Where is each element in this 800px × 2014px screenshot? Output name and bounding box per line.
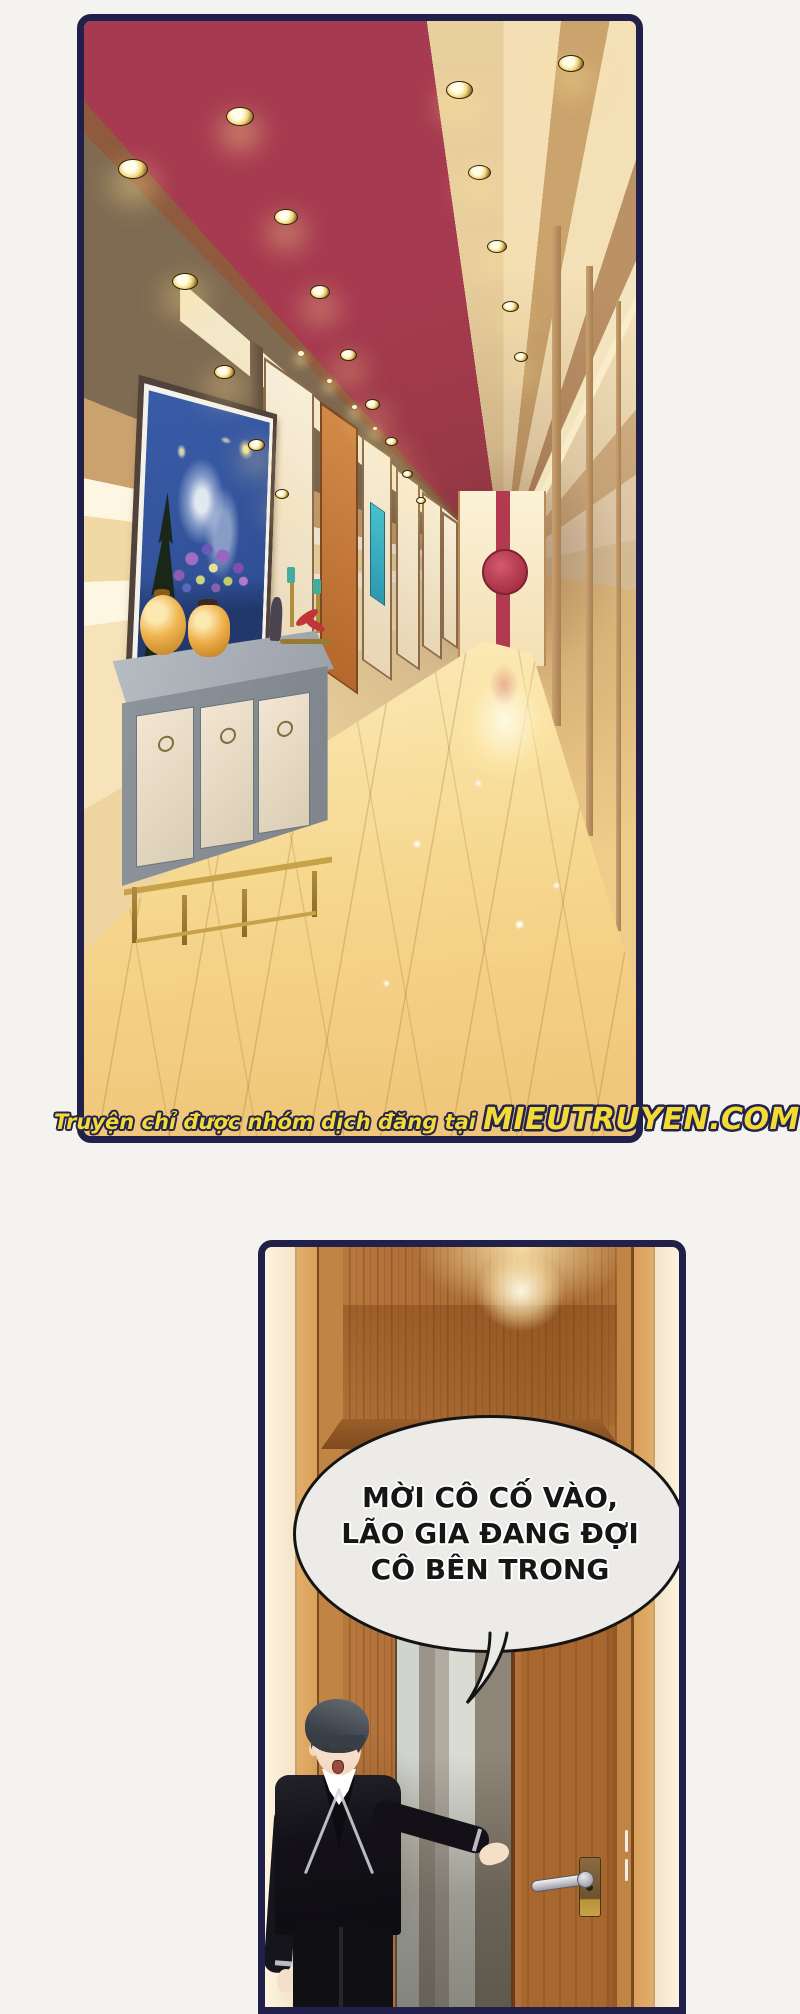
speech-bubble-tail — [461, 1631, 517, 1709]
sideboard-leg — [242, 889, 247, 937]
ceiling-light — [118, 159, 148, 179]
watermark: Truyện chỉ được nhóm dịch đăng tại MIEUT… — [54, 1102, 800, 1137]
ceiling-light — [365, 399, 380, 410]
flower-bouquet — [166, 539, 252, 605]
ring-handle — [277, 720, 293, 739]
ceiling-light — [402, 470, 413, 478]
candlestick — [290, 581, 294, 627]
speech-line: LÃO GIA ĐANG ĐỢI — [341, 1516, 639, 1552]
wall-pillar — [586, 266, 593, 836]
ceiling-light — [248, 439, 265, 451]
teal-candle — [287, 567, 295, 583]
ceiling-light — [416, 497, 426, 504]
ceiling-light — [487, 240, 507, 253]
end-wall-red-medallion — [482, 549, 528, 595]
ceiling-light — [214, 365, 235, 379]
hallway-panel — [77, 14, 643, 1143]
corridor-door-orange — [320, 401, 358, 695]
speech-line: MỜI CÔ CỐ VÀO, — [341, 1480, 639, 1516]
ceiling-light — [468, 165, 491, 180]
door-art-teal — [370, 502, 385, 607]
doorway-light-glow — [465, 1240, 577, 1343]
right-wall-strip — [653, 1247, 681, 2007]
corridor-door — [422, 491, 442, 660]
speech-bubble-text: MỜI CÔ CỐ VÀO, LÃO GIA ĐANG ĐỢI CÔ BÊN T… — [341, 1480, 639, 1588]
corridor-door — [442, 511, 458, 649]
frame-highlight — [625, 1830, 628, 1852]
floor-red-reflection — [484, 657, 524, 713]
wall-pillar — [616, 301, 621, 931]
floor-sparkle — [476, 781, 481, 786]
floor-sparkle — [414, 841, 420, 847]
amber-flower-vase — [188, 605, 230, 657]
watermark-site: MIEUTRUYEN.COM — [483, 1102, 800, 1137]
frame-highlight — [625, 1859, 628, 1881]
deco-tray — [280, 639, 332, 644]
speech-line: CÔ BÊN TRONG — [341, 1552, 639, 1588]
ceiling-light — [310, 285, 330, 299]
floor-sparkle — [516, 921, 523, 928]
butler-trousers — [293, 1927, 393, 2007]
butler-closed-eye — [342, 1747, 354, 1757]
sideboard-leg — [182, 895, 187, 945]
teal-candle — [313, 579, 321, 594]
speech-bubble: MỜI CÔ CỐ VÀO, LÃO GIA ĐANG ĐỢI CÔ BÊN T… — [293, 1415, 686, 1653]
ring-handle — [158, 735, 174, 754]
door-frame-strip — [634, 1247, 653, 2007]
ceiling-light — [340, 349, 357, 361]
sideboard-leg — [132, 887, 137, 943]
soffit-mini-light — [352, 405, 357, 409]
butler-closed-eye — [321, 1747, 333, 1757]
ceiling-light — [275, 489, 289, 499]
ceiling-light — [558, 55, 584, 72]
sideboard-door — [136, 706, 194, 867]
dark-figurine — [269, 597, 283, 642]
ring-handle — [220, 727, 236, 746]
door-panel: MỜI CÔ CỐ VÀO, LÃO GIA ĐANG ĐỢI CÔ BÊN T… — [258, 1240, 686, 2014]
door-frame-strip — [617, 1247, 634, 2007]
butler-cuff-trim — [472, 1828, 482, 1851]
soffit-mini-light — [298, 351, 304, 356]
ceiling-light — [446, 81, 473, 99]
corridor-door — [362, 435, 392, 681]
sideboard-door — [200, 699, 254, 850]
floor-sparkle — [384, 981, 389, 986]
watermark-text: Truyện chỉ được nhóm dịch đăng tại — [54, 1110, 476, 1134]
ceiling-light — [172, 273, 198, 290]
floor-sparkle — [554, 883, 559, 888]
ceiling-light — [226, 107, 254, 126]
soffit-mini-light — [373, 427, 377, 430]
ceiling-light — [274, 209, 298, 225]
butler-mouth — [332, 1760, 344, 1774]
handle-hub — [577, 1871, 594, 1888]
ceiling-light — [502, 301, 519, 312]
ceiling-light — [514, 352, 528, 362]
sideboard-door — [258, 692, 310, 834]
ceiling-light — [385, 437, 398, 446]
soffit-mini-light — [327, 379, 332, 383]
